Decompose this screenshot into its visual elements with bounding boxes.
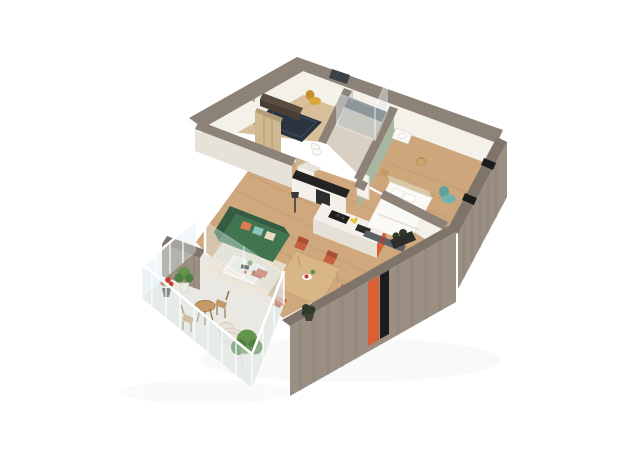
centerpiece-fruit <box>305 275 309 279</box>
facade-window-glass <box>380 270 389 339</box>
facade-window-orange-reveal <box>368 276 379 346</box>
centerpiece-plant <box>311 270 316 275</box>
toilet <box>311 143 322 155</box>
floorplan-render-canvas <box>0 0 640 470</box>
wicker-basket <box>416 158 426 166</box>
isometric-apartment-svg <box>0 0 640 470</box>
bench-decor <box>381 238 385 242</box>
